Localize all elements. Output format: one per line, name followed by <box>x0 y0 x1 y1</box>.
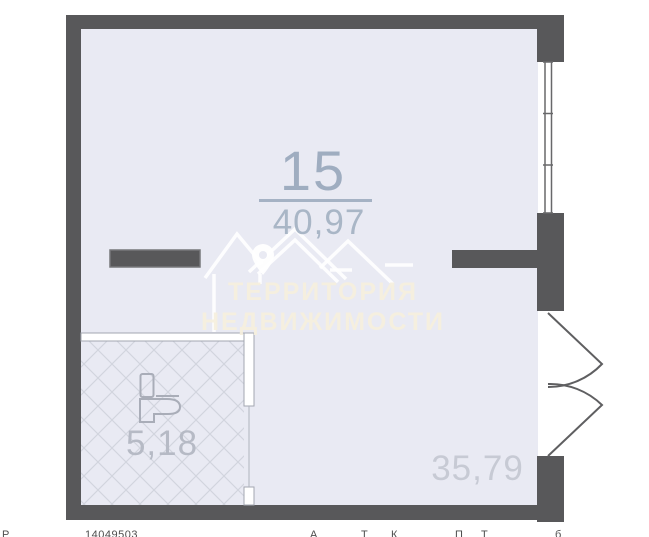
footer-fragment: Т <box>481 529 488 537</box>
watermark-subtitle: НЕДВИЖИМОСТИ <box>200 308 446 337</box>
watermark-title: ТЕРРИТОРИЯ <box>200 278 446 307</box>
room-area-label: 35,79 <box>420 451 535 486</box>
footer-fragment: К <box>391 529 397 537</box>
listing-id: 14049503 <box>85 529 138 537</box>
footer-caption: Р 14049503 А Т К П Т б <box>0 527 649 537</box>
unit-number-underline <box>259 199 372 202</box>
window-icon <box>543 62 553 213</box>
unit-number-label: 15 <box>250 143 376 199</box>
footer-fragment: Р <box>2 529 9 537</box>
floorplan-canvas: ТЕРРИТОРИЯ НЕДВИЖИМОСТИ 15 40,97 5,18 35… <box>0 0 649 537</box>
bathroom-area-label: 5,18 <box>112 426 212 461</box>
footer-fragment: П <box>455 529 463 537</box>
door-swing-icon <box>548 313 602 456</box>
bathroom-hatch <box>81 341 244 505</box>
footer-fragment: Т <box>361 529 368 537</box>
footer-fragment: б <box>555 529 561 537</box>
footer-fragment: А <box>310 529 317 537</box>
unit-area-label: 40,97 <box>249 205 389 240</box>
